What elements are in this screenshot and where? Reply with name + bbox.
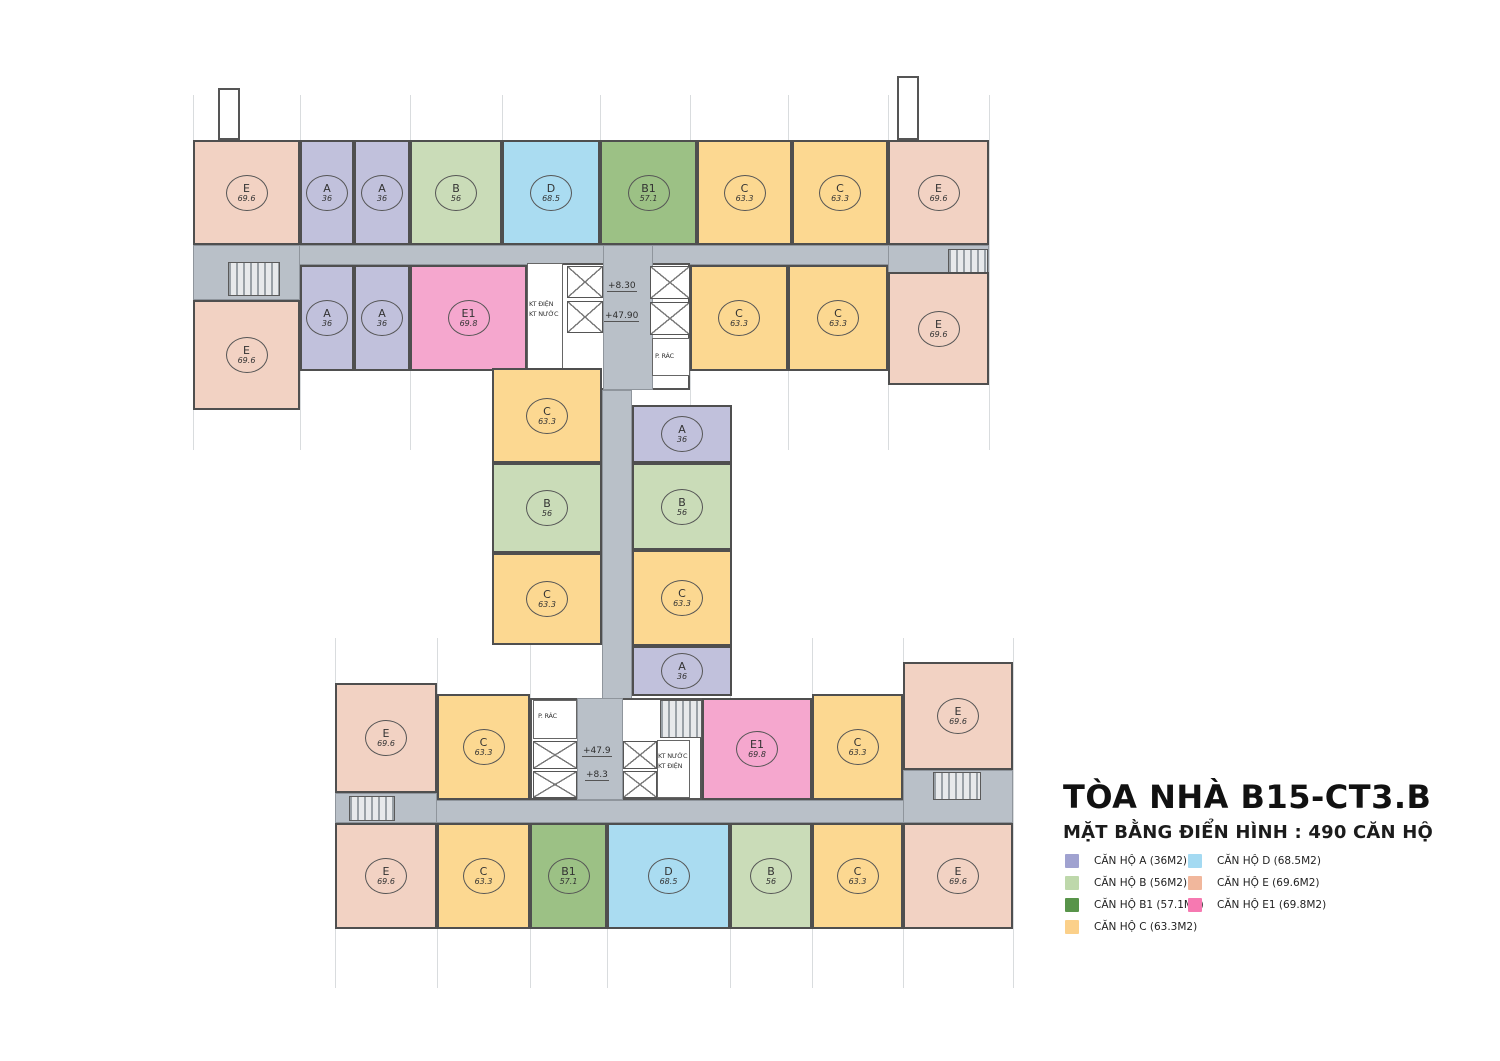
unit-area-value: 69.8 <box>748 751 766 759</box>
legend-swatch <box>1065 854 1079 868</box>
apartment-unit-C: C63.3 <box>492 553 602 645</box>
unit-label: B56 <box>661 489 703 525</box>
unit-label: D68.5 <box>530 175 572 211</box>
unit-area-value: 36 <box>677 673 687 681</box>
apartment-unit-E: E69.6 <box>903 662 1013 770</box>
apartment-unit-C: C63.3 <box>492 368 602 463</box>
unit-type-letter: C <box>543 589 551 600</box>
unit-type-letter: C <box>836 183 844 194</box>
unit-type-letter: A <box>378 308 386 319</box>
unit-label: C63.3 <box>526 581 568 617</box>
unit-label: A36 <box>306 300 348 336</box>
unit-area-value: 63.3 <box>849 878 867 886</box>
vent-shaft <box>218 88 240 140</box>
level-annotation: +8.3 <box>585 770 609 781</box>
elevator-shaft <box>533 741 577 769</box>
apartment-unit-E1: E169.8 <box>410 265 527 371</box>
apartment-unit-A: A36 <box>632 405 732 463</box>
unit-label: B56 <box>435 175 477 211</box>
apartment-unit-E1: E169.8 <box>702 698 812 800</box>
unit-label: E69.6 <box>918 311 960 347</box>
unit-type-letter: E <box>243 183 250 194</box>
unit-label: B157.1 <box>628 175 670 211</box>
unit-type-letter: C <box>480 737 488 748</box>
room-label: P. RÁC <box>538 712 557 720</box>
unit-label: E69.6 <box>226 175 268 211</box>
unit-type-letter: C <box>678 588 686 599</box>
unit-area-value: 69.6 <box>377 878 395 886</box>
legend-label: CĂN HỘ A (36M2) <box>1094 855 1187 867</box>
staircase <box>349 796 395 821</box>
apartment-unit-B1: B157.1 <box>600 140 697 245</box>
title-block: TÒA NHÀ B15-CT3.B MẶT BẰNG ĐIỂN HÌNH : 4… <box>1063 780 1433 843</box>
unit-label: C63.3 <box>724 175 766 211</box>
unit-area-value: 56 <box>451 195 461 203</box>
apartment-unit-E: E69.6 <box>903 823 1013 929</box>
apartment-unit-B1: B157.1 <box>530 823 607 929</box>
unit-type-letter: E <box>935 183 942 194</box>
unit-area-value: 69.6 <box>930 195 948 203</box>
unit-type-letter: A <box>323 183 331 194</box>
unit-type-letter: E <box>383 728 390 739</box>
apartment-unit-D: D68.5 <box>502 140 600 245</box>
vent-shaft <box>897 76 919 140</box>
unit-type-letter: E <box>955 866 962 877</box>
unit-area-value: 36 <box>322 195 332 203</box>
unit-type-letter: E1 <box>462 308 476 319</box>
apartment-unit-C: C63.3 <box>812 694 903 800</box>
apartment-unit-C: C63.3 <box>632 550 732 646</box>
level-annotation: +8.30 <box>607 281 637 292</box>
legend-label: CĂN HỘ B (56M2) <box>1094 877 1187 889</box>
elevator-shaft <box>567 266 603 298</box>
unit-type-letter: E <box>243 345 250 356</box>
unit-type-letter: A <box>678 424 686 435</box>
legend-item: CĂN HỘ B1 (57.1M2) <box>1065 897 1204 912</box>
elevator-shaft <box>567 301 603 333</box>
unit-label: E169.8 <box>736 731 778 767</box>
legend-swatch <box>1065 876 1079 890</box>
unit-type-letter: A <box>678 661 686 672</box>
elevator-shaft <box>650 266 690 299</box>
legend-swatch <box>1188 876 1202 890</box>
unit-area-value: 36 <box>377 195 387 203</box>
building-subtitle: MẶT BẰNG ĐIỂN HÌNH : 490 CĂN HỘ <box>1063 822 1433 843</box>
unit-area-value: 57.1 <box>640 195 658 203</box>
apartment-unit-B: B56 <box>492 463 602 553</box>
unit-area-value: 57.1 <box>560 878 578 886</box>
unit-label: E69.6 <box>226 337 268 373</box>
apartment-unit-E: E69.6 <box>193 140 300 245</box>
apartment-unit-C: C63.3 <box>437 823 530 929</box>
unit-type-letter: B <box>452 183 460 194</box>
unit-type-letter: B1 <box>561 866 576 877</box>
unit-type-letter: C <box>543 406 551 417</box>
unit-area-value: 69.6 <box>238 357 256 365</box>
unit-label: C63.3 <box>837 858 879 894</box>
unit-label: E169.8 <box>448 300 490 336</box>
legend-label: CĂN HỘ E1 (69.8M2) <box>1217 899 1326 911</box>
unit-type-letter: B1 <box>641 183 656 194</box>
grid-line <box>1013 638 1014 988</box>
apartment-unit-E: E69.6 <box>888 140 989 245</box>
unit-label: A36 <box>661 416 703 452</box>
unit-area-value: 69.6 <box>930 331 948 339</box>
staircase <box>933 772 981 800</box>
apartment-unit-A: A36 <box>300 140 354 245</box>
unit-label: C63.3 <box>837 729 879 765</box>
unit-type-letter: E <box>935 319 942 330</box>
unit-type-letter: B <box>767 866 775 877</box>
unit-label: E69.6 <box>918 175 960 211</box>
unit-area-value: 69.8 <box>460 320 478 328</box>
unit-type-letter: C <box>480 866 488 877</box>
elevator-shaft <box>623 741 657 769</box>
unit-label: C63.3 <box>819 175 861 211</box>
apartment-unit-C: C63.3 <box>792 140 888 245</box>
unit-type-letter: E1 <box>750 739 764 750</box>
legend-label: CĂN HỘ D (68.5M2) <box>1217 855 1321 867</box>
unit-area-value: 68.5 <box>660 878 678 886</box>
grid-line <box>989 95 990 450</box>
unit-area-value: 63.3 <box>849 749 867 757</box>
unit-type-letter: C <box>735 308 743 319</box>
unit-area-value: 56 <box>677 509 687 517</box>
apartment-unit-C: C63.3 <box>812 823 903 929</box>
unit-label: C63.3 <box>526 398 568 434</box>
building-title: TÒA NHÀ B15-CT3.B <box>1063 780 1433 815</box>
unit-label: A36 <box>361 300 403 336</box>
unit-area-value: 63.3 <box>829 320 847 328</box>
unit-label: D68.5 <box>648 858 690 894</box>
unit-area-value: 69.6 <box>949 878 967 886</box>
apartment-unit-E: E69.6 <box>193 300 300 410</box>
unit-area-value: 36 <box>322 320 332 328</box>
apartment-unit-C: C63.3 <box>697 140 792 245</box>
legend-label: CĂN HỘ E (69.6M2) <box>1217 877 1320 889</box>
elevator-shaft <box>533 771 577 798</box>
apartment-unit-B: B56 <box>410 140 502 245</box>
unit-area-value: 63.3 <box>538 418 556 426</box>
unit-type-letter: D <box>547 183 555 194</box>
unit-label: E69.6 <box>937 698 979 734</box>
unit-area-value: 56 <box>766 878 776 886</box>
unit-area-value: 68.5 <box>542 195 560 203</box>
unit-label: C63.3 <box>817 300 859 336</box>
legend-item: CĂN HỘ D (68.5M2) <box>1188 853 1321 868</box>
unit-label: A36 <box>661 653 703 689</box>
unit-label: A36 <box>361 175 403 211</box>
corridor <box>602 390 632 700</box>
unit-type-letter: E <box>955 706 962 717</box>
apartment-unit-A: A36 <box>354 140 410 245</box>
apartment-unit-B: B56 <box>632 463 732 550</box>
legend-item: CĂN HỘ A (36M2) <box>1065 853 1187 868</box>
unit-label: A36 <box>306 175 348 211</box>
apartment-unit-A: A36 <box>632 646 732 696</box>
apartment-unit-B: B56 <box>730 823 812 929</box>
unit-type-letter: A <box>323 308 331 319</box>
elevator-shaft <box>650 302 690 335</box>
unit-label: B56 <box>750 858 792 894</box>
unit-type-letter: E <box>383 866 390 877</box>
level-annotation: +47.9 <box>582 746 612 757</box>
staircase <box>660 700 702 738</box>
elevator-shaft <box>623 771 657 798</box>
unit-type-letter: C <box>741 183 749 194</box>
unit-type-letter: B <box>678 497 686 508</box>
room-label: KT NƯỚC <box>658 752 687 760</box>
unit-area-value: 69.6 <box>377 740 395 748</box>
legend-swatch <box>1188 854 1202 868</box>
unit-label: C63.3 <box>463 729 505 765</box>
unit-type-letter: C <box>854 737 862 748</box>
legend-item: CĂN HỘ C (63.3M2) <box>1065 919 1197 934</box>
corridor <box>193 245 989 265</box>
unit-area-value: 69.6 <box>949 718 967 726</box>
unit-label: E69.6 <box>365 720 407 756</box>
apartment-unit-D: D68.5 <box>607 823 730 929</box>
legend: CĂN HỘ A (36M2)CĂN HỘ B (56M2)CĂN HỘ B1 … <box>1065 853 1365 963</box>
unit-label: B56 <box>526 490 568 526</box>
legend-label: CĂN HỘ C (63.3M2) <box>1094 921 1197 933</box>
unit-type-letter: D <box>664 866 672 877</box>
unit-area-value: 36 <box>377 320 387 328</box>
unit-label: B157.1 <box>548 858 590 894</box>
unit-label: C63.3 <box>661 580 703 616</box>
level-annotation: +47.90 <box>604 311 639 322</box>
apartment-unit-A: A36 <box>354 265 410 371</box>
unit-label: C63.3 <box>718 300 760 336</box>
unit-area-value: 63.3 <box>673 600 691 608</box>
apartment-unit-C: C63.3 <box>690 265 788 371</box>
legend-item: CĂN HỘ B (56M2) <box>1065 875 1187 890</box>
legend-item: CĂN HỘ E (69.6M2) <box>1188 875 1320 890</box>
floor-plan-page: E69.6A36A36B56D68.5B157.1C63.3C63.3E69.6… <box>0 0 1500 1061</box>
unit-type-letter: C <box>834 308 842 319</box>
unit-area-value: 56 <box>542 510 552 518</box>
legend-swatch <box>1065 920 1079 934</box>
room-label: P. RÁC <box>655 352 674 360</box>
legend-item: CĂN HỘ E1 (69.8M2) <box>1188 897 1326 912</box>
unit-area-value: 63.3 <box>475 878 493 886</box>
unit-type-letter: C <box>854 866 862 877</box>
unit-area-value: 63.3 <box>538 601 556 609</box>
legend-swatch <box>1188 898 1202 912</box>
apartment-unit-A: A36 <box>300 265 354 371</box>
unit-area-value: 63.3 <box>831 195 849 203</box>
unit-type-letter: A <box>378 183 386 194</box>
unit-label: C63.3 <box>463 858 505 894</box>
room-label: KT NƯỚC <box>529 310 558 318</box>
unit-label: E69.6 <box>937 858 979 894</box>
unit-area-value: 69.6 <box>238 195 256 203</box>
unit-area-value: 63.3 <box>730 320 748 328</box>
apartment-unit-C: C63.3 <box>788 265 888 371</box>
apartment-unit-E: E69.6 <box>335 823 437 929</box>
apartment-unit-E: E69.6 <box>335 683 437 793</box>
room-label: KT ĐIỆN <box>658 762 682 770</box>
unit-area-value: 63.3 <box>475 749 493 757</box>
unit-area-value: 36 <box>677 436 687 444</box>
apartment-unit-E: E69.6 <box>888 272 989 385</box>
apartment-unit-C: C63.3 <box>437 694 530 800</box>
legend-swatch <box>1065 898 1079 912</box>
unit-area-value: 63.3 <box>736 195 754 203</box>
unit-label: E69.6 <box>365 858 407 894</box>
unit-type-letter: B <box>543 498 551 509</box>
room-label: KT ĐIỆN <box>529 300 553 308</box>
staircase <box>228 262 280 296</box>
